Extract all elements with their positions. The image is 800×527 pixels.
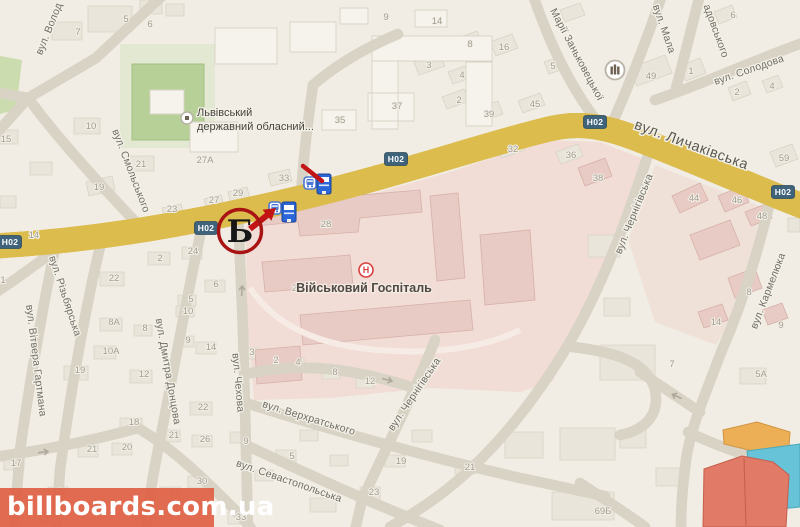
house-number: 39 (484, 109, 495, 120)
house-number: 9 (383, 12, 388, 23)
hospital-label: Військовий Госпіталь (296, 281, 432, 295)
landmark-icon-bar (617, 67, 619, 75)
house-number: 21 (465, 462, 476, 473)
house-number: 27 (209, 195, 220, 206)
billboard-icon[interactable] (282, 202, 296, 222)
house-number: 8 (332, 367, 337, 378)
bus-stop-icon[interactable] (304, 177, 316, 189)
house-number: 48 (757, 211, 768, 222)
route-shield: H02 (0, 236, 22, 249)
house-number: 4 (459, 70, 464, 81)
house-number: 20 (122, 442, 133, 453)
house-number: 12 (139, 369, 150, 380)
house-number: 12 (365, 376, 376, 387)
house-number: 10 (86, 121, 97, 132)
bus-glyph (307, 179, 314, 185)
house-number: 10 (183, 306, 194, 317)
house-number: 1 (688, 66, 693, 77)
house-number: 2 (456, 95, 461, 106)
house-number: 3 (426, 60, 431, 71)
house-number: 59 (779, 153, 790, 164)
poi-dot-icon-core (185, 116, 189, 120)
house-number: 21 (169, 430, 180, 441)
house-number: 5 (123, 14, 128, 25)
house-number: 24 (188, 246, 199, 257)
poi-landmark[interactable] (606, 61, 625, 80)
house-number: 16 (499, 42, 510, 53)
house-number: 46 (732, 195, 743, 206)
house-number: 2 (734, 87, 739, 98)
marker-letter: Б (227, 214, 254, 250)
house-number: 7 (669, 359, 674, 370)
poi-label-line: Львівський (197, 107, 252, 119)
house-number: 26 (200, 434, 211, 445)
bus-glyph-wheel (307, 185, 309, 187)
house-number: 8 (467, 39, 472, 50)
billboard-icon-legs (322, 191, 326, 194)
house-number: 6 (147, 19, 152, 30)
house-number: 6 (213, 279, 218, 290)
route-shield-text: H02 (198, 223, 215, 233)
house-number: 19 (396, 456, 407, 467)
house-number: 9 (778, 320, 783, 331)
house-number: 49 (646, 71, 657, 82)
house-number: 4 (769, 81, 774, 92)
house-number: 14 (29, 230, 40, 241)
poi-label-line: державний обласний... (197, 121, 314, 133)
bus-glyph-wheel (311, 185, 313, 187)
house-number: 4 (295, 357, 300, 368)
billboard-icon-face (284, 205, 294, 210)
house-number: 7 (75, 27, 80, 38)
billboard-icon-line (319, 185, 329, 187)
house-number: 22 (109, 273, 120, 284)
house-number: 19 (75, 365, 86, 376)
house-number: 33 (279, 173, 290, 184)
house-number: 10А (103, 346, 121, 357)
route-shield-text: H02 (2, 237, 19, 247)
house-number: 5А (755, 369, 767, 380)
billboard-icon-legs (287, 219, 291, 222)
house-number: 37 (392, 101, 403, 112)
house-number: 18 (129, 417, 140, 428)
route-shield-text: H02 (775, 187, 792, 197)
house-number: 28 (321, 219, 332, 230)
house-number: 69Б (595, 506, 612, 517)
billboard-icon-line (284, 213, 294, 215)
route-shield-text: H02 (587, 117, 604, 127)
house-number: 14 (711, 317, 722, 328)
house-number: 5 (188, 294, 193, 305)
route-shield: H02 (584, 116, 607, 129)
house-number: 9 (185, 335, 190, 346)
house-number: 15 (1, 134, 12, 145)
house-number: 2 (273, 355, 278, 366)
map-canvas[interactable]: 56710152127А9148163423735394532336549124… (0, 0, 800, 527)
house-number: 23 (167, 204, 178, 215)
house-number: 19 (94, 182, 105, 193)
house-number: 29 (233, 188, 244, 199)
house-number: 38 (593, 173, 604, 184)
house-number: 5 (289, 451, 294, 462)
house-number: 8А (108, 317, 120, 328)
map-viewport[interactable]: 56710152127А9148163423735394532336549124… (0, 0, 800, 527)
bus-glyph-window (272, 205, 278, 206)
house-number: 8 (746, 287, 751, 298)
house-number: 32 (508, 144, 519, 155)
house-number: 9 (243, 436, 248, 447)
route-shield: H02 (772, 186, 795, 199)
house-number: 14 (432, 16, 443, 27)
house-number: 35 (335, 115, 346, 126)
watermark-text: billboards.com.ua (7, 492, 275, 522)
house-number: 36 (566, 150, 577, 161)
landmark-icon-bar (614, 65, 616, 75)
house-number: 2 (157, 253, 162, 264)
bus-glyph-window (307, 180, 313, 181)
house-number: 14 (206, 342, 217, 353)
route-shield-text: H02 (388, 154, 405, 164)
house-number: 23 (369, 487, 380, 498)
bus-glyph-wheel (276, 210, 278, 212)
hospital-icon-letter: Н (363, 265, 370, 275)
landmark-icon-bar (611, 67, 613, 75)
house-number: 3 (249, 347, 254, 358)
house-number: 6 (730, 10, 735, 21)
watermark-banner: billboards.com.ua (0, 488, 214, 527)
route-shield: H02 (195, 222, 218, 235)
house-number: 21 (87, 444, 98, 455)
house-number: 8 (142, 323, 147, 334)
house-number: 17 (11, 458, 22, 469)
house-number: 44 (689, 193, 700, 204)
route-shield: H02 (385, 153, 408, 166)
house-number: 45 (530, 99, 541, 110)
house-number: 21 (136, 159, 147, 170)
house-number: 1 (0, 275, 5, 286)
house-number: 22 (198, 402, 209, 413)
house-number: 30 (197, 476, 208, 487)
house-number: 27А (197, 155, 215, 166)
house-number: 5 (550, 61, 555, 72)
